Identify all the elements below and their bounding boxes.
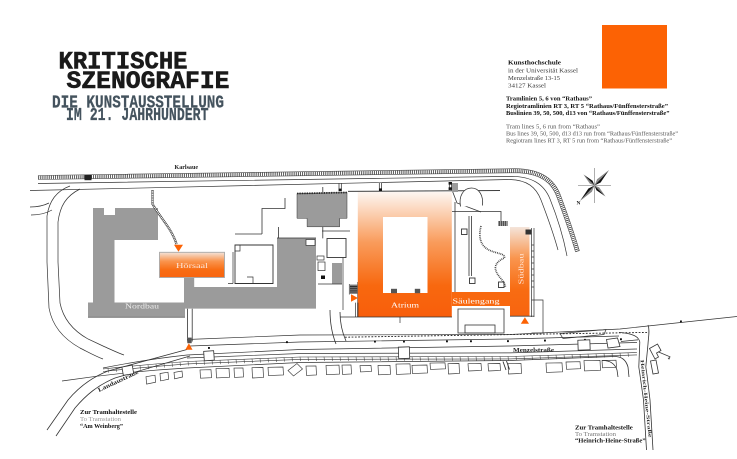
svg-text:Säulengang: Säulengang <box>453 297 500 306</box>
svg-text:Menzelstraße: Menzelstraße <box>513 348 554 354</box>
svg-text:Bus lines 39, 50, 500, d13 d13: Bus lines 39, 50, 500, d13 d13 run from … <box>506 130 678 137</box>
svg-text:Regiotramlinien RT 3, RT 5 “Ra: Regiotramlinien RT 3, RT 5 “Rathaus/Fünf… <box>506 103 668 110</box>
svg-text:34127 Kassel: 34127 Kassel <box>508 83 546 90</box>
svg-text:Hörsaal: Hörsaal <box>176 262 208 270</box>
svg-text:Nordbau: Nordbau <box>125 302 159 311</box>
svg-text:“Am Weinberg”: “Am Weinberg” <box>80 423 123 430</box>
svg-text:Regiotram lines RT 3, RT 5 run: Regiotram lines RT 3, RT 5 run from “Rat… <box>506 138 672 145</box>
svg-text:Tram lines 5, 6 run from “Rath: Tram lines 5, 6 run from “Rathaus” <box>506 123 600 130</box>
svg-text:Karlsaue: Karlsaue <box>175 165 199 171</box>
svg-text:Menzelstraße 13-15: Menzelstraße 13-15 <box>508 75 560 82</box>
svg-text:“Heinrich-Heine-Straße”: “Heinrich-Heine-Straße” <box>575 438 646 445</box>
svg-text:Kunsthochschule: Kunsthochschule <box>508 60 561 67</box>
svg-text:in der Universität Kassel: in der Universität Kassel <box>508 67 578 74</box>
svg-text:Südbau: Südbau <box>517 253 526 284</box>
svg-text:IM 21. JAHRHUNDERT: IM 21. JAHRHUNDERT <box>66 105 209 126</box>
svg-text:Tramlinien 5, 6 von “Rathaus”: Tramlinien 5, 6 von “Rathaus” <box>506 96 592 103</box>
svg-text:Atrium: Atrium <box>391 301 419 310</box>
svg-text:Buslinien 39, 50, 500, d13 von: Buslinien 39, 50, 500, d13 von “Rathaus/… <box>506 110 670 117</box>
svg-text:N: N <box>577 201 581 207</box>
